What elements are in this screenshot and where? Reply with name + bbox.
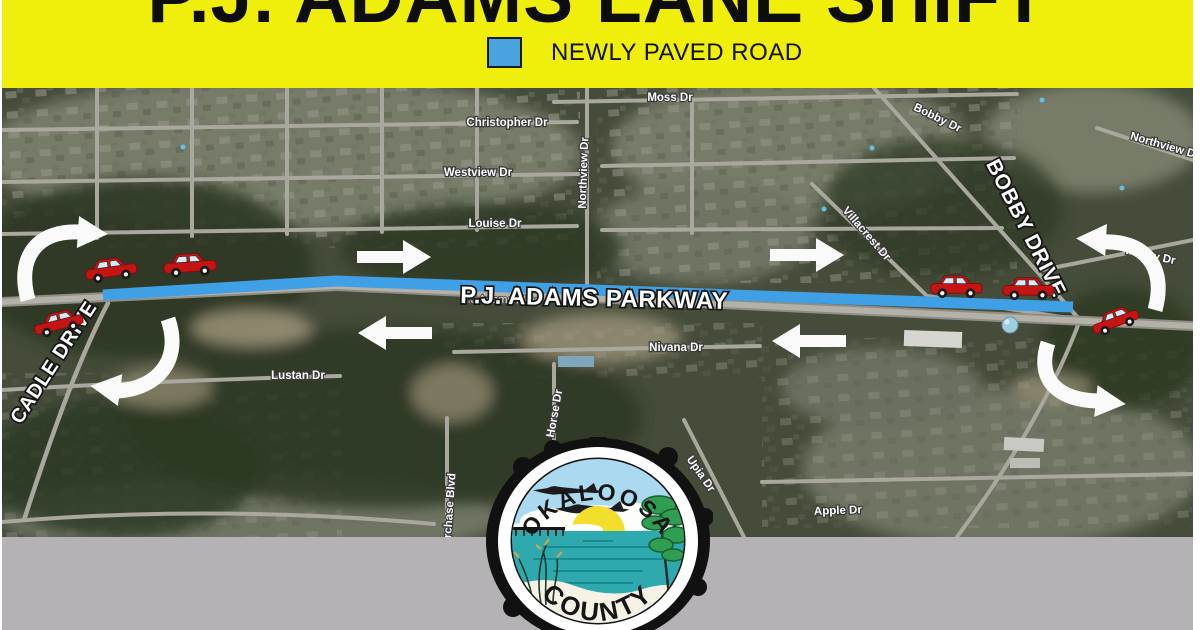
street-label-nivana-dr: Nivana Dr (649, 342, 703, 354)
lane-shift-infographic: P.J. ADAMS LANE SHIFT NEWLY PAVED ROAD (0, 0, 1200, 630)
street-label-apple-dr: Apple Dr (814, 504, 863, 518)
okaloosa-county-seal: OKALOOSA COUNTY (483, 437, 713, 630)
water-tower-icon (1002, 317, 1018, 333)
page-title: P.J. ADAMS LANE SHIFT (2, 0, 1193, 34)
street-label-moss-dr: Moss Dr (647, 92, 693, 104)
legend-label: NEWLY PAVED ROAD (551, 39, 803, 67)
legend-color-swatch (487, 37, 522, 68)
street-label-westview-dr: Westview Dr (444, 167, 513, 179)
street-label-louise-dr: Louise Dr (468, 218, 522, 230)
county-seal-canvas: OKALOOSA COUNTY (483, 437, 713, 630)
street-label-christopher-dr: Christopher Dr (466, 117, 548, 129)
header-banner: P.J. ADAMS LANE SHIFT NEWLY PAVED ROAD (2, 0, 1193, 88)
street-label-northview-dr: Northview Dr (577, 136, 592, 208)
street-label-lustan-dr: Lustan Dr (271, 370, 325, 382)
